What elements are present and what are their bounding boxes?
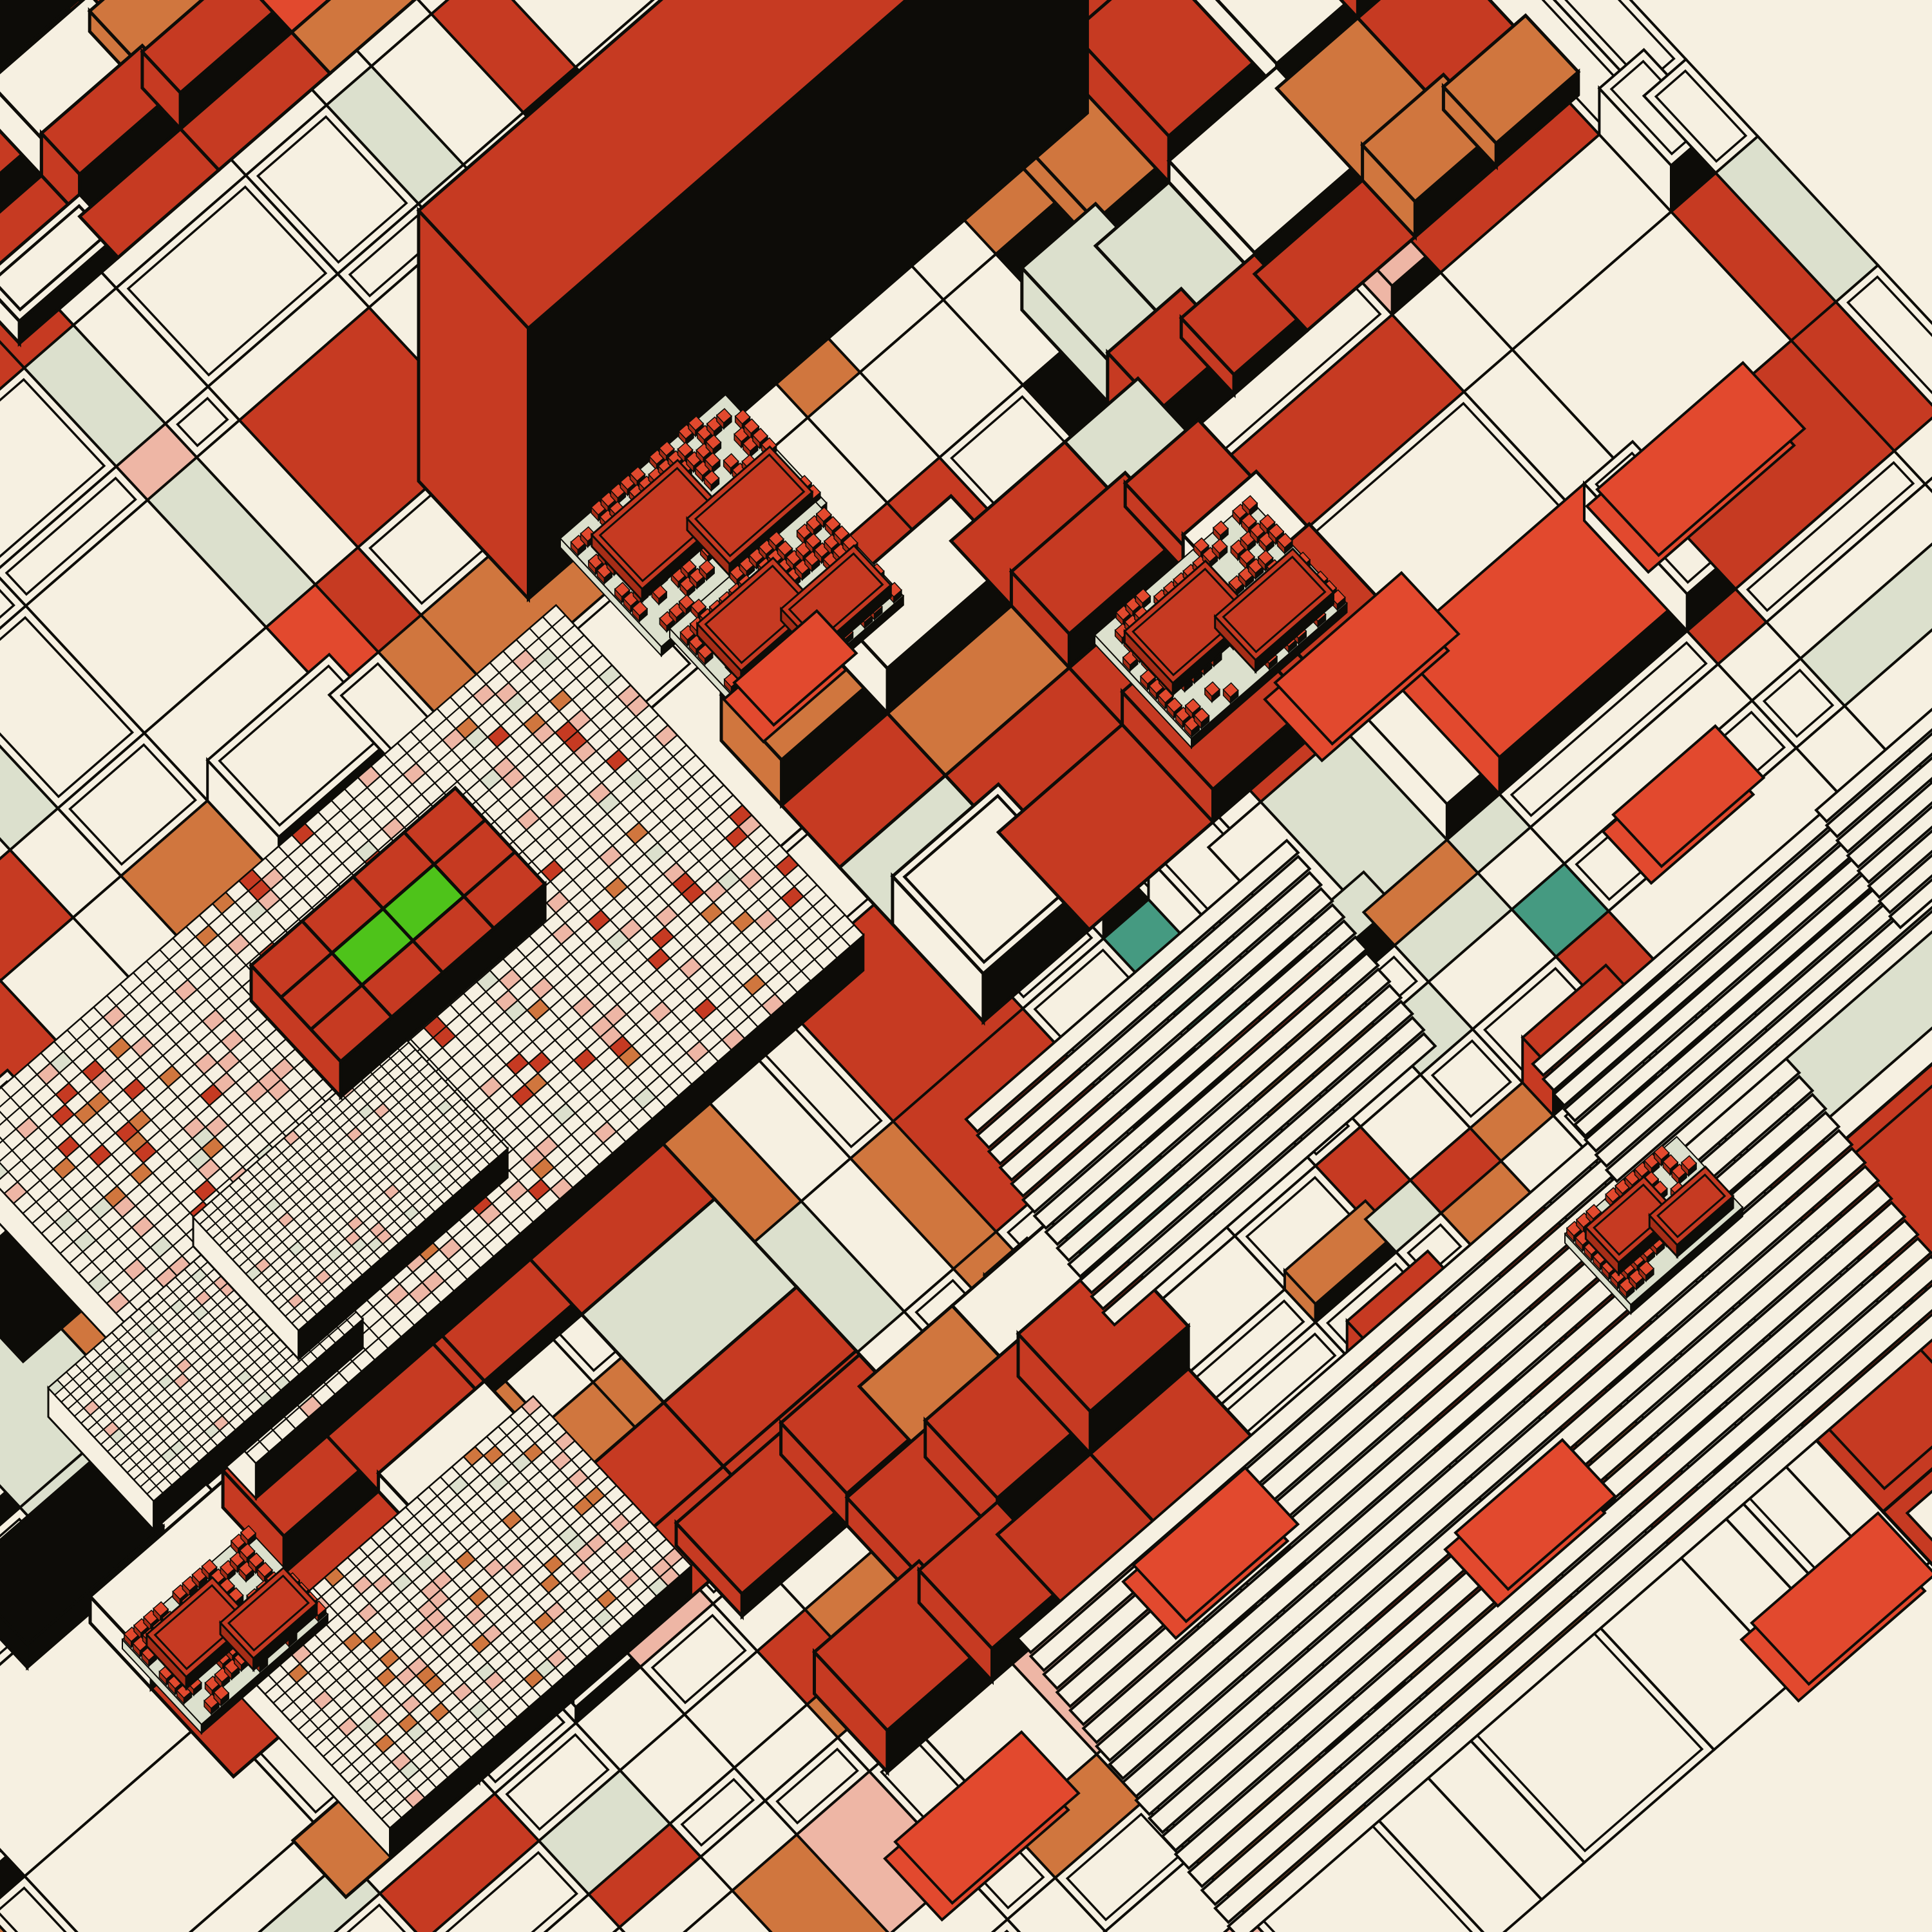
artwork-canvas bbox=[0, 0, 1932, 1932]
isometric-scene bbox=[0, 0, 1932, 1932]
